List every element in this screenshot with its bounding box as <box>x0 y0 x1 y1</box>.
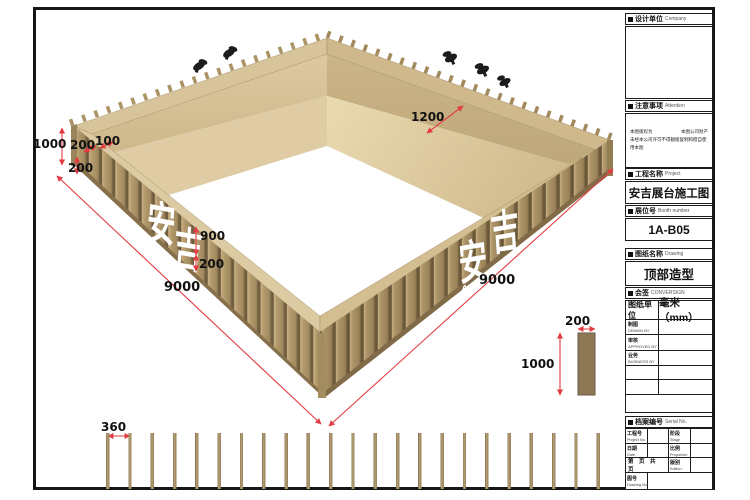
project-label-zh: 工程名称 <box>635 169 663 179</box>
serial-label-en: Serial No. <box>665 419 687 425</box>
black-square-icon <box>628 252 633 257</box>
proportion-cell <box>691 444 713 457</box>
drawing-no-cell <box>648 473 713 489</box>
spotlight-icon <box>474 62 491 77</box>
booth-header: 展位号 Booth number <box>625 205 713 217</box>
edition-cell <box>691 458 713 472</box>
slat-row <box>106 433 601 489</box>
empty-row-full <box>626 394 712 412</box>
proportion-label-en: Proportion <box>670 452 689 457</box>
sign-table: 图纸单位 毫米（mm） 制图 DRAWN BY 审核 APPROVED BY 业… <box>625 300 713 413</box>
business-by-label-en: BUSINESS BY <box>628 359 658 364</box>
attention-box: 本图版权为 本图公司财产 未经本公司许可不得翻版复制和擅自使用本图 <box>625 113 713 168</box>
attention-label-zh: 注意事项 <box>635 101 663 111</box>
project-name-value: 安吉展台施工图 <box>625 181 713 204</box>
drawing-name-value: 顶部造型 <box>625 261 713 286</box>
spotlight-icon <box>222 45 239 60</box>
spotlight-icon <box>192 58 209 73</box>
units-label: 图纸单位 <box>626 301 659 319</box>
attention-header: 注意事项 Attention <box>625 100 713 112</box>
attention-note-line2: 未经本公司许可不得翻版复制和擅自使用本图 <box>630 136 708 152</box>
drawing-name-label-en: Drawing <box>665 251 683 257</box>
stage-label-zh: 阶段 <box>670 430 690 437</box>
corner-post-front <box>317 332 326 398</box>
attention-note-line1-right: 本图公司财产 <box>681 128 708 136</box>
project-no-label-en: Project No. <box>627 437 646 442</box>
company-header: 设计单位 Company <box>625 13 713 25</box>
serial-row-3: 第 页 共 页 版别 Edition <box>626 458 712 473</box>
attention-note: 本图版权为 本图公司财产 未经本公司许可不得翻版复制和擅自使用本图 <box>626 114 712 152</box>
date-cell <box>648 444 670 457</box>
serial-row-4: 图号 Drawing No. <box>626 473 712 489</box>
approved-by-label-en: APPROVED BY <box>628 344 658 349</box>
empty-row <box>626 379 712 394</box>
approved-by-row: 审核 APPROVED BY <box>626 334 712 350</box>
dim-side-left-label: 9000 <box>164 280 200 295</box>
serial-label-zh: 档案编号 <box>635 417 663 427</box>
dim-side-right-label: 9000 <box>479 273 515 288</box>
drawn-by-label-zh: 制图 <box>628 321 658 328</box>
proportion-label-zh: 比例 <box>670 445 690 452</box>
attention-note-line1-left: 本图版权为 <box>630 128 653 136</box>
business-by-cell <box>659 351 712 365</box>
drawn-by-row: 制图 DRAWN BY <box>626 319 712 334</box>
units-row: 图纸单位 毫米（mm） <box>626 301 712 319</box>
stage-label-en: Stage <box>670 437 689 442</box>
dim-shelf-label: 1200 <box>411 110 444 124</box>
dim-panel-height-label: 1000 <box>521 357 554 371</box>
spotlight-icon <box>496 74 511 88</box>
logo-char: 安 <box>145 196 177 255</box>
company-label-zh: 设计单位 <box>635 14 663 24</box>
black-square-icon <box>628 209 633 214</box>
serial-row-2: 日期 Date 比例 Proportion <box>626 444 712 458</box>
units-value: 毫米（mm） <box>659 301 712 319</box>
project-header: 工程名称 Project <box>625 168 713 180</box>
project-no-label-zh: 工程号 <box>627 430 647 437</box>
approved-by-cell <box>659 335 712 350</box>
edition-label-en: Edition <box>670 466 689 471</box>
drawing-name-label-zh: 图纸名称 <box>635 249 663 259</box>
corner-post-right <box>607 140 613 176</box>
panel-detail <box>578 333 595 395</box>
company-label-en: Company <box>665 16 686 22</box>
stage-cell <box>691 429 713 443</box>
attention-label-en: Attention <box>665 103 685 109</box>
logo-char: 吉 <box>489 204 521 263</box>
empty-row <box>626 365 712 379</box>
serial-row-1: 工程号 Project No. 阶段 Stage <box>626 429 712 444</box>
drawing-no-label-en: Drawing No. <box>627 482 646 487</box>
black-square-icon <box>628 420 633 425</box>
spotlight-icon <box>442 50 459 65</box>
drawing-no-label-zh: 图号 <box>627 475 647 482</box>
edition-label-zh: 版别 <box>670 459 690 466</box>
black-square-icon <box>628 17 633 22</box>
company-box <box>625 26 713 99</box>
black-square-icon <box>628 104 633 109</box>
dim-rim100-label: 100 <box>95 134 120 148</box>
dim-panel200-label: 200 <box>199 257 224 271</box>
pages-label: 第 页 共 页 <box>626 458 669 472</box>
dim-rim200-label: 200 <box>70 138 95 152</box>
dim-wall-height-label: 1000 <box>33 137 66 151</box>
date-label-en: Date <box>627 452 646 457</box>
business-by-row: 业务 BUSINESS BY <box>626 350 712 365</box>
serial-header: 档案编号 Serial No. <box>625 416 713 428</box>
dim-panel-width-label: 200 <box>565 314 590 328</box>
dim-slat-spacing-label: 360 <box>101 420 126 434</box>
logo-latin: AN JI <box>148 256 167 264</box>
dim-panel900-label: 900 <box>200 229 225 243</box>
booth-number-value: 1A-B05 <box>625 218 713 241</box>
black-square-icon <box>628 172 633 177</box>
drawing-sheet: 安 吉 AN JI 安 吉 AN JI 1000 <box>0 0 750 500</box>
dim-corner200-label: 200 <box>68 161 93 175</box>
approved-by-label-zh: 审核 <box>628 337 658 344</box>
project-no-cell <box>648 429 670 443</box>
project-label-en: Project <box>665 171 681 177</box>
drawn-by-label-en: DRAWN BY <box>628 328 658 333</box>
conversign-label-zh: 会签 <box>635 288 649 298</box>
business-by-label-zh: 业务 <box>628 352 658 359</box>
booth-label-en: Booth number <box>658 208 689 214</box>
drawn-by-cell <box>659 320 712 334</box>
serial-grid: 工程号 Project No. 阶段 Stage 日期 Date 比例 <box>625 428 713 490</box>
title-block: 设计单位 Company 注意事项 Attention 本图版权为 本图公司财产… <box>625 0 713 500</box>
date-label-zh: 日期 <box>627 445 647 452</box>
booth-label-zh: 展位号 <box>635 206 656 216</box>
drawing-name-header: 图纸名称 Drawing <box>625 248 713 260</box>
black-square-icon <box>628 291 633 296</box>
